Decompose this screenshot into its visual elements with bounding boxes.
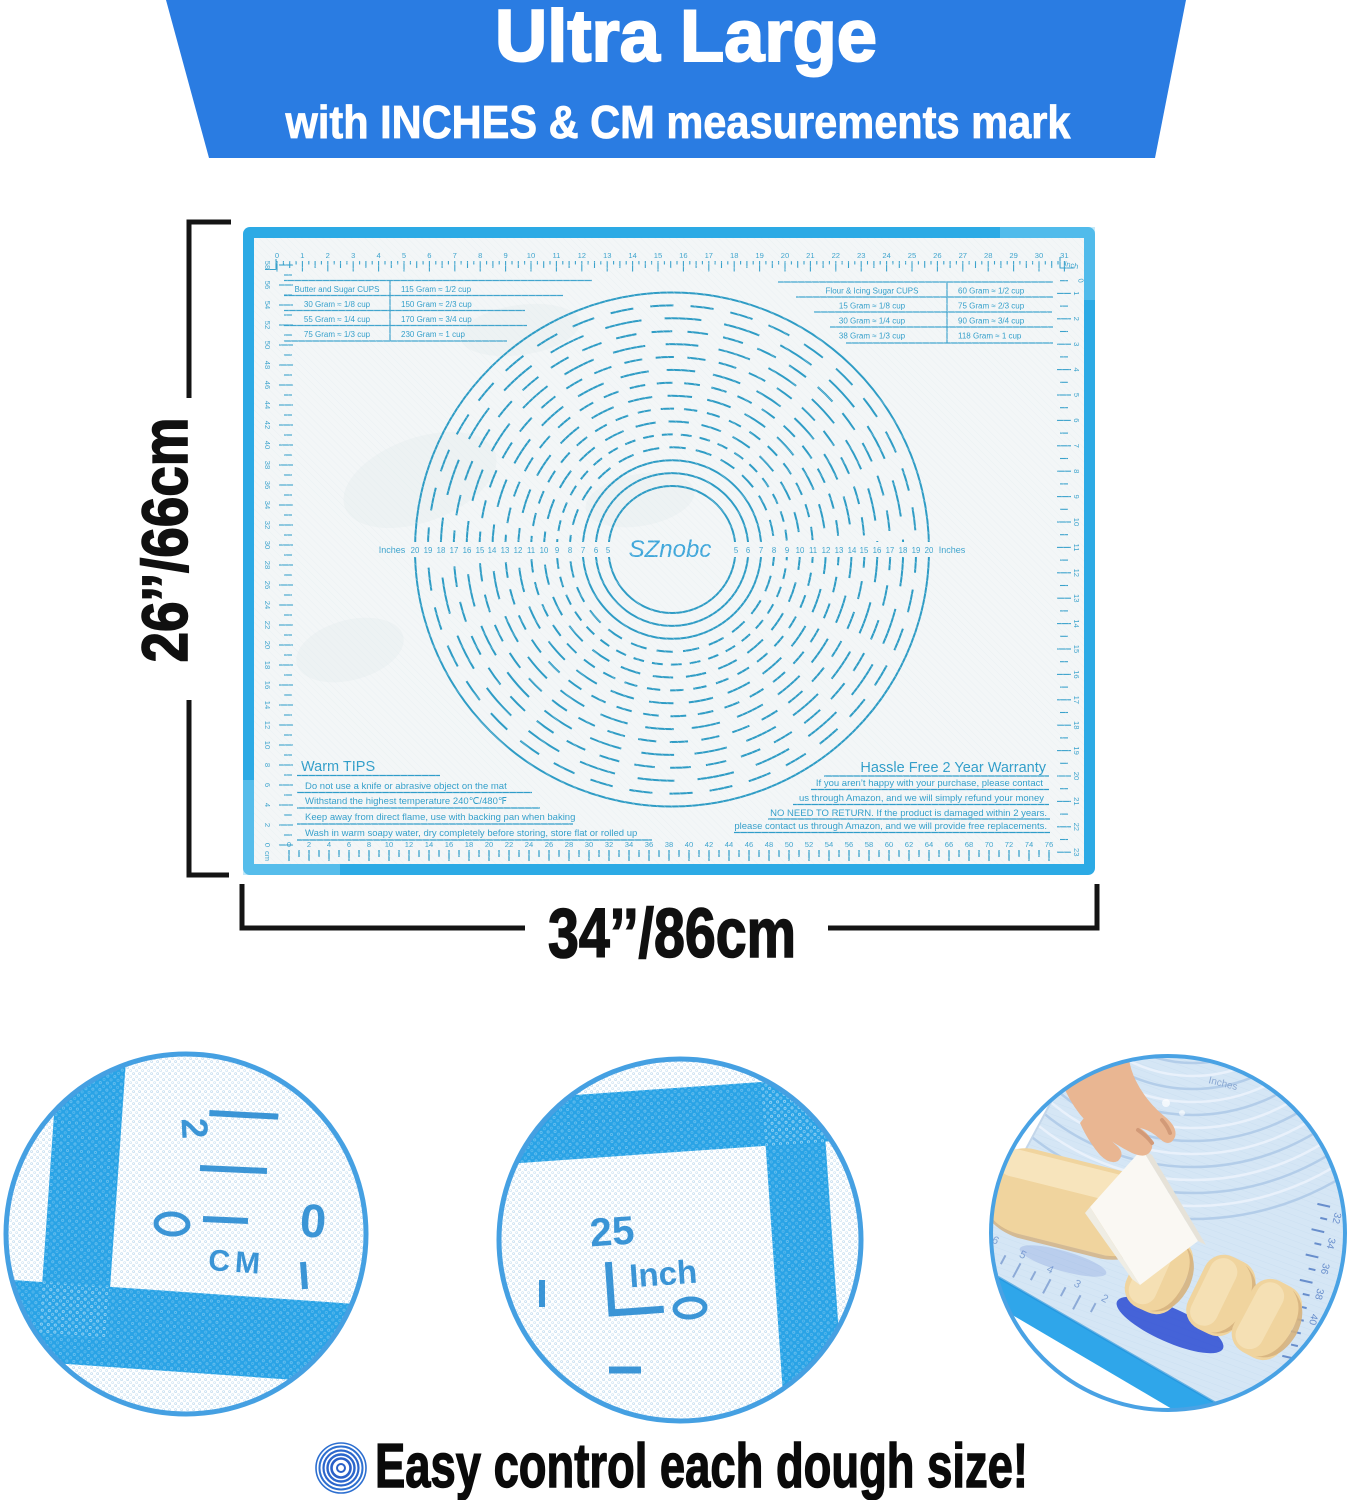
svg-text:Easy control each dough size!: Easy control each dough size! [375,1432,1028,1500]
svg-text:26’’/66cm: 26’’/66cm [129,418,201,663]
svg-text:44: 44 [1294,1363,1307,1377]
svg-text:0: 0 [298,1193,328,1248]
svg-text:Ultra Large: Ultra Large [495,0,877,77]
svg-text:CM: CM [207,1244,266,1281]
svg-text:25: 25 [588,1209,635,1256]
svg-text:34’’/86cm: 34’’/86cm [548,894,796,972]
svg-text:Inch: Inch [628,1253,698,1295]
svg-text:with INCHES & CM measurements: with INCHES & CM measurements mark [285,96,1071,148]
svg-text:2: 2 [173,1117,215,1140]
